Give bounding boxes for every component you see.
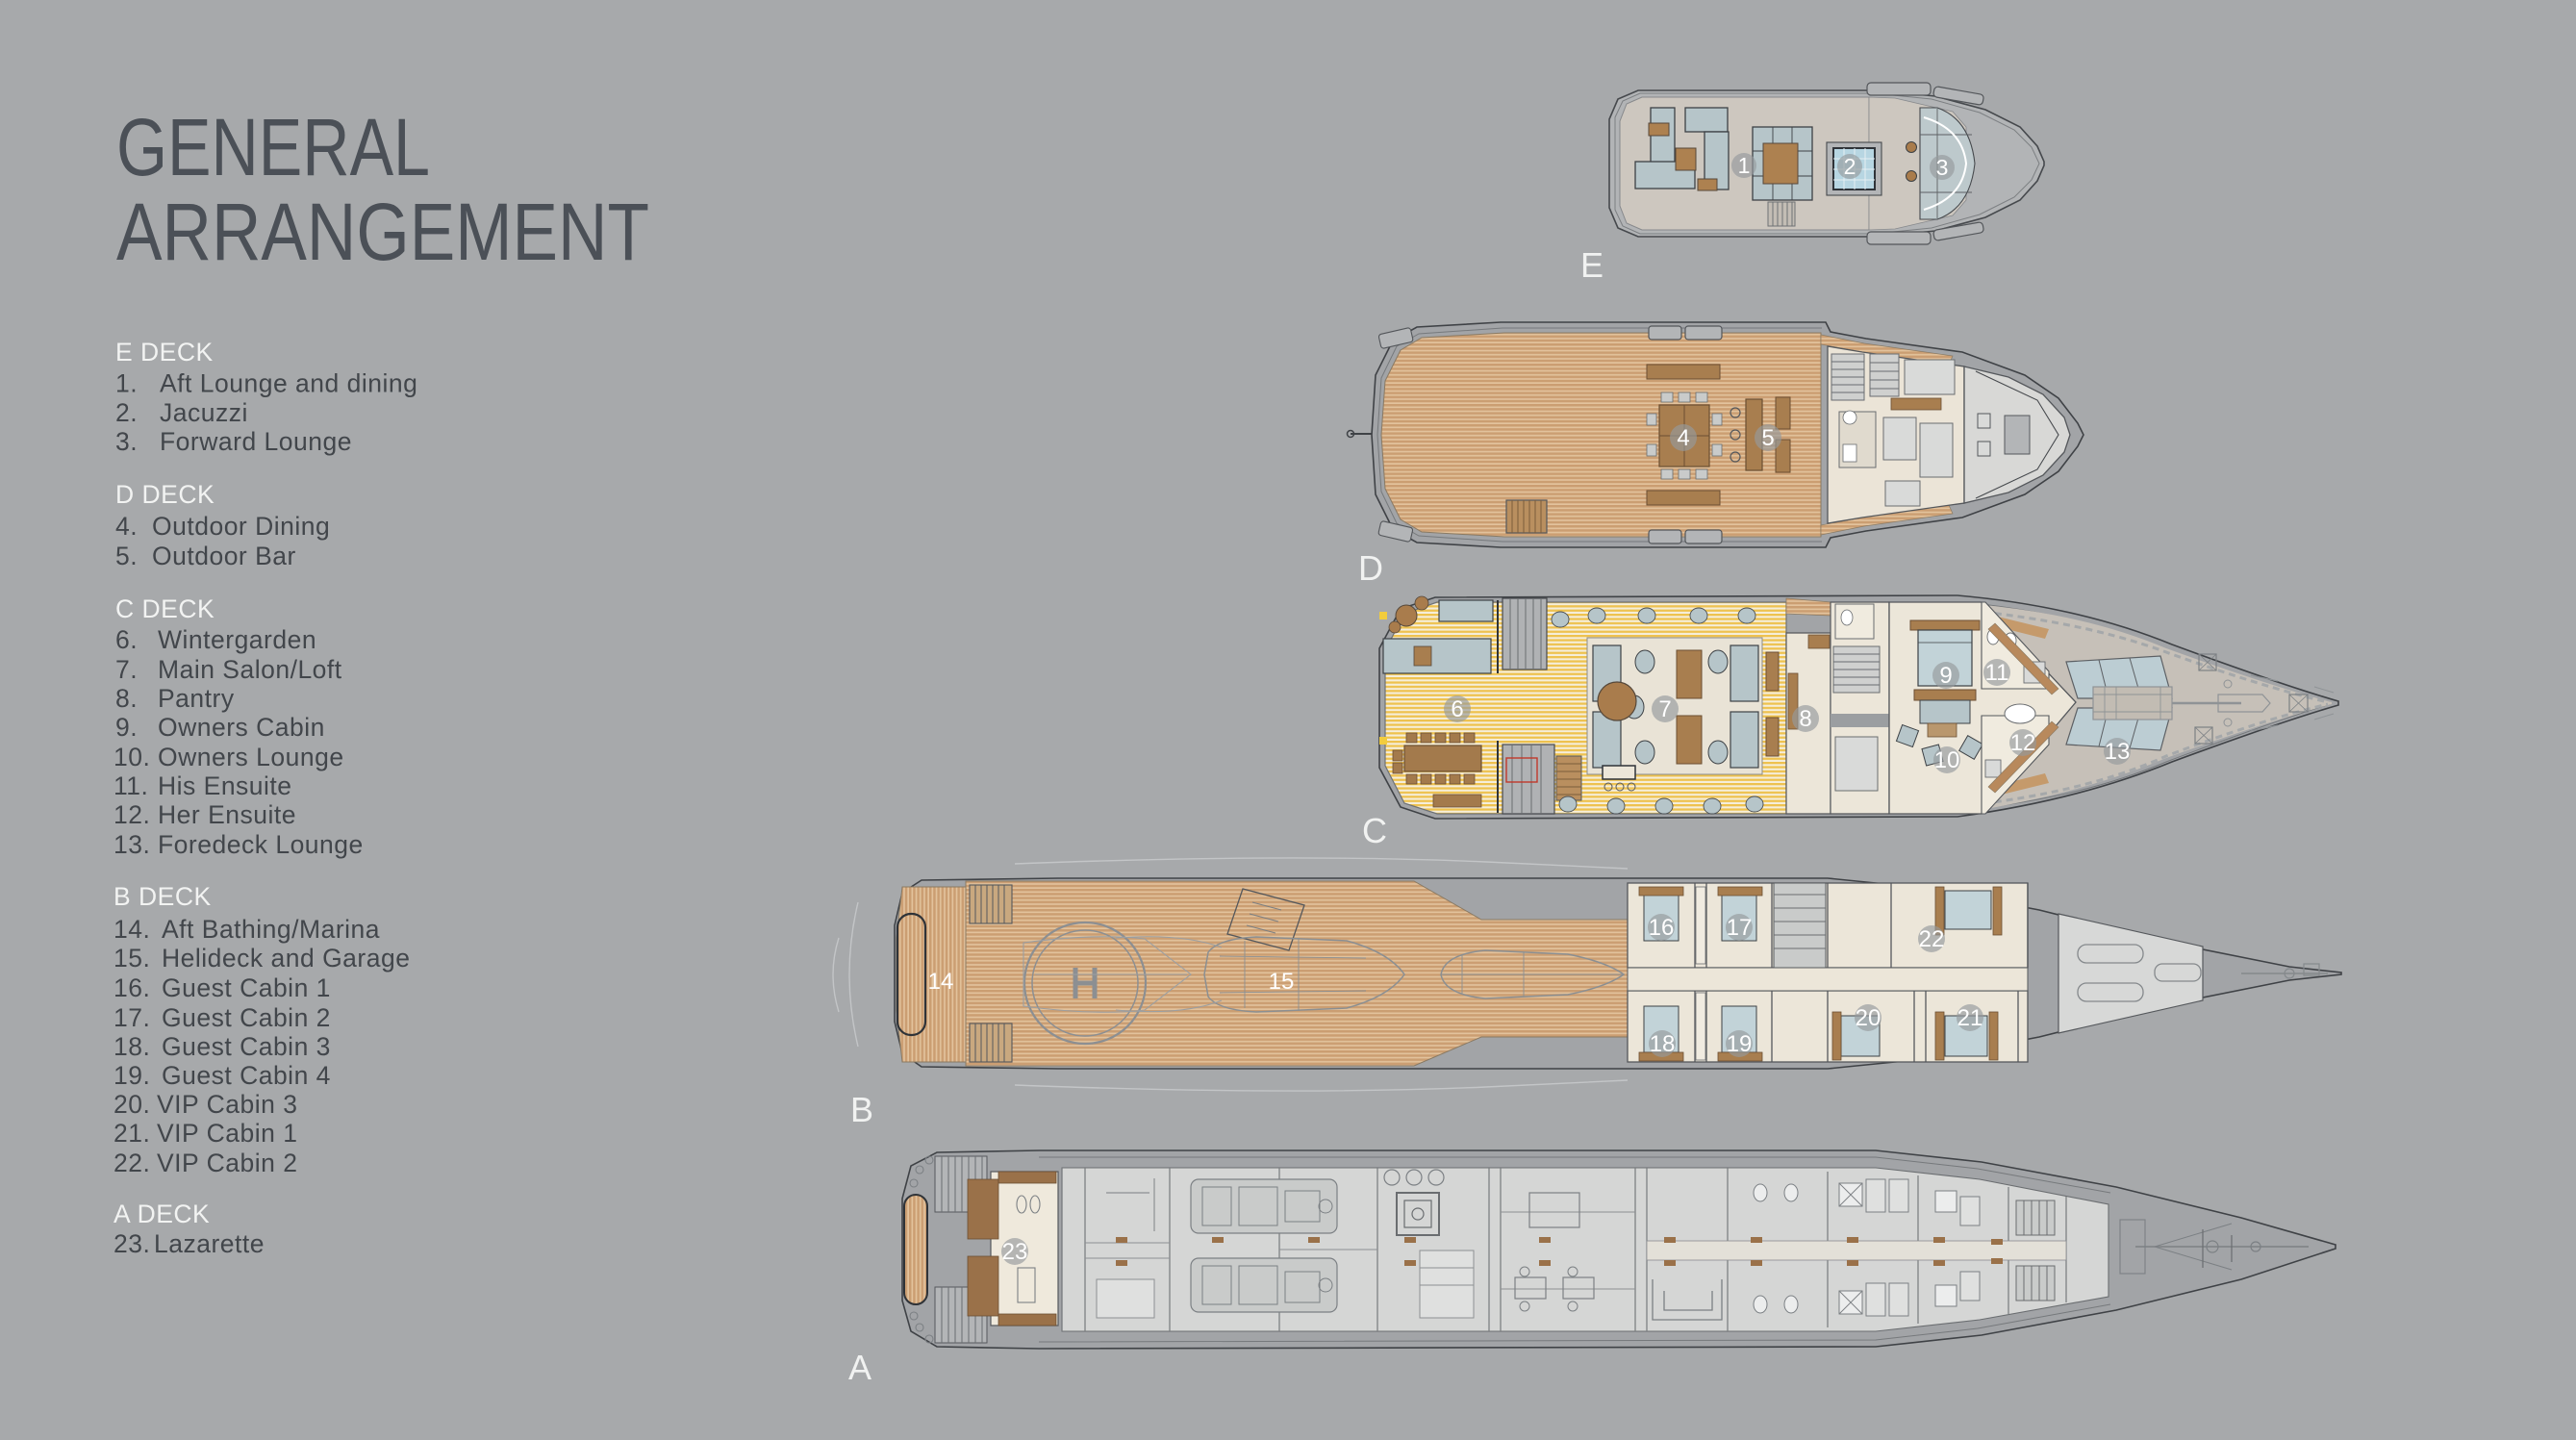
svg-text:A DECK: A DECK xyxy=(114,1200,210,1228)
svg-text:18: 18 xyxy=(1650,1031,1676,1057)
svg-text:22: 22 xyxy=(1919,926,1945,952)
svg-text:10: 10 xyxy=(1934,747,1960,773)
svg-text:Forward Lounge: Forward Lounge xyxy=(160,427,352,456)
svg-text:7.: 7. xyxy=(115,655,138,684)
svg-text:10.: 10. xyxy=(114,743,150,771)
svg-text:E DECK: E DECK xyxy=(115,338,214,366)
svg-text:7: 7 xyxy=(1658,696,1671,722)
svg-text:Owners Cabin: Owners Cabin xyxy=(158,713,325,742)
svg-text:Pantry: Pantry xyxy=(158,684,235,713)
svg-text:1.: 1. xyxy=(115,369,138,398)
svg-text:18.: 18. xyxy=(114,1032,150,1061)
svg-text:C DECK: C DECK xyxy=(115,594,215,623)
svg-text:2: 2 xyxy=(1844,154,1856,179)
svg-text:20: 20 xyxy=(1856,1005,1881,1031)
svg-text:Main Salon/Loft: Main Salon/Loft xyxy=(158,655,342,684)
svg-text:5: 5 xyxy=(1761,425,1774,451)
svg-text:17.: 17. xyxy=(114,1003,150,1032)
svg-text:Outdoor Dining: Outdoor Dining xyxy=(152,512,330,541)
svg-text:GENERAL: GENERAL xyxy=(116,102,430,192)
svg-text:15: 15 xyxy=(1269,969,1295,995)
svg-text:13.: 13. xyxy=(114,830,150,859)
svg-text:Guest Cabin 1: Guest Cabin 1 xyxy=(162,973,331,1002)
svg-text:5.: 5. xyxy=(115,542,138,570)
svg-text:Foredeck Lounge: Foredeck Lounge xyxy=(158,830,364,859)
svg-text:14.: 14. xyxy=(114,915,150,944)
svg-text:Guest Cabin 3: Guest Cabin 3 xyxy=(162,1032,331,1061)
svg-text:1: 1 xyxy=(1738,153,1751,178)
svg-text:Guest Cabin 2: Guest Cabin 2 xyxy=(162,1003,331,1032)
svg-text:3: 3 xyxy=(1936,155,1949,180)
svg-text:Outdoor Bar: Outdoor Bar xyxy=(152,542,296,570)
svg-text:15.: 15. xyxy=(114,944,150,973)
svg-text:19.: 19. xyxy=(114,1061,150,1090)
svg-text:B DECK: B DECK xyxy=(114,882,212,911)
svg-text:His Ensuite: His Ensuite xyxy=(158,771,292,800)
svg-text:Her Ensuite: Her Ensuite xyxy=(158,800,296,829)
svg-text:19: 19 xyxy=(1727,1031,1753,1057)
svg-text:11: 11 xyxy=(1985,660,2009,686)
svg-text:21: 21 xyxy=(1957,1005,1983,1031)
svg-text:22.: 22. xyxy=(114,1149,150,1177)
svg-text:23.: 23. xyxy=(114,1229,150,1258)
svg-text:3.: 3. xyxy=(115,427,138,456)
svg-text:20.: 20. xyxy=(114,1090,150,1119)
svg-text:VIP Cabin 2: VIP Cabin 2 xyxy=(157,1149,297,1177)
svg-text:VIP Cabin 1: VIP Cabin 1 xyxy=(157,1119,297,1148)
svg-text:E: E xyxy=(1580,245,1604,285)
svg-text:8.: 8. xyxy=(115,684,138,713)
svg-text:23: 23 xyxy=(1002,1239,1028,1265)
svg-text:B: B xyxy=(850,1090,873,1129)
svg-text:12: 12 xyxy=(2010,730,2036,756)
svg-text:17: 17 xyxy=(1727,915,1753,941)
svg-text:4: 4 xyxy=(1677,425,1689,451)
svg-text:ARRANGEMENT: ARRANGEMENT xyxy=(116,187,649,277)
svg-text:13: 13 xyxy=(2105,739,2131,765)
svg-text:Jacuzzi: Jacuzzi xyxy=(160,398,248,427)
svg-text:D: D xyxy=(1358,548,1383,588)
svg-text:4.: 4. xyxy=(115,512,138,541)
svg-text:Guest Cabin 4: Guest Cabin 4 xyxy=(162,1061,331,1090)
svg-text:Wintergarden: Wintergarden xyxy=(158,625,316,654)
svg-text:Aft Bathing/Marina: Aft Bathing/Marina xyxy=(162,915,380,944)
svg-text:6: 6 xyxy=(1451,696,1463,722)
svg-text:12.: 12. xyxy=(114,800,150,829)
svg-text:VIP Cabin 3: VIP Cabin 3 xyxy=(157,1090,297,1119)
svg-text:A: A xyxy=(848,1348,871,1387)
svg-text:Lazarette: Lazarette xyxy=(154,1229,265,1258)
svg-text:9: 9 xyxy=(1939,663,1952,689)
svg-text:Helideck and Garage: Helideck and Garage xyxy=(162,944,410,973)
svg-text:Aft Lounge and dining: Aft Lounge and dining xyxy=(160,369,417,398)
svg-text:16: 16 xyxy=(1649,915,1675,941)
svg-text:C: C xyxy=(1362,811,1387,850)
svg-text:21.: 21. xyxy=(114,1119,150,1148)
svg-text:11.: 11. xyxy=(114,771,148,800)
svg-text:16.: 16. xyxy=(114,973,150,1002)
svg-text:Owners Lounge: Owners Lounge xyxy=(158,743,344,771)
svg-text:8: 8 xyxy=(1799,706,1811,732)
svg-text:9.: 9. xyxy=(115,713,138,742)
svg-text:2.: 2. xyxy=(115,398,138,427)
svg-text:6.: 6. xyxy=(115,625,138,654)
svg-text:14: 14 xyxy=(928,969,954,995)
svg-text:D DECK: D DECK xyxy=(115,480,215,509)
